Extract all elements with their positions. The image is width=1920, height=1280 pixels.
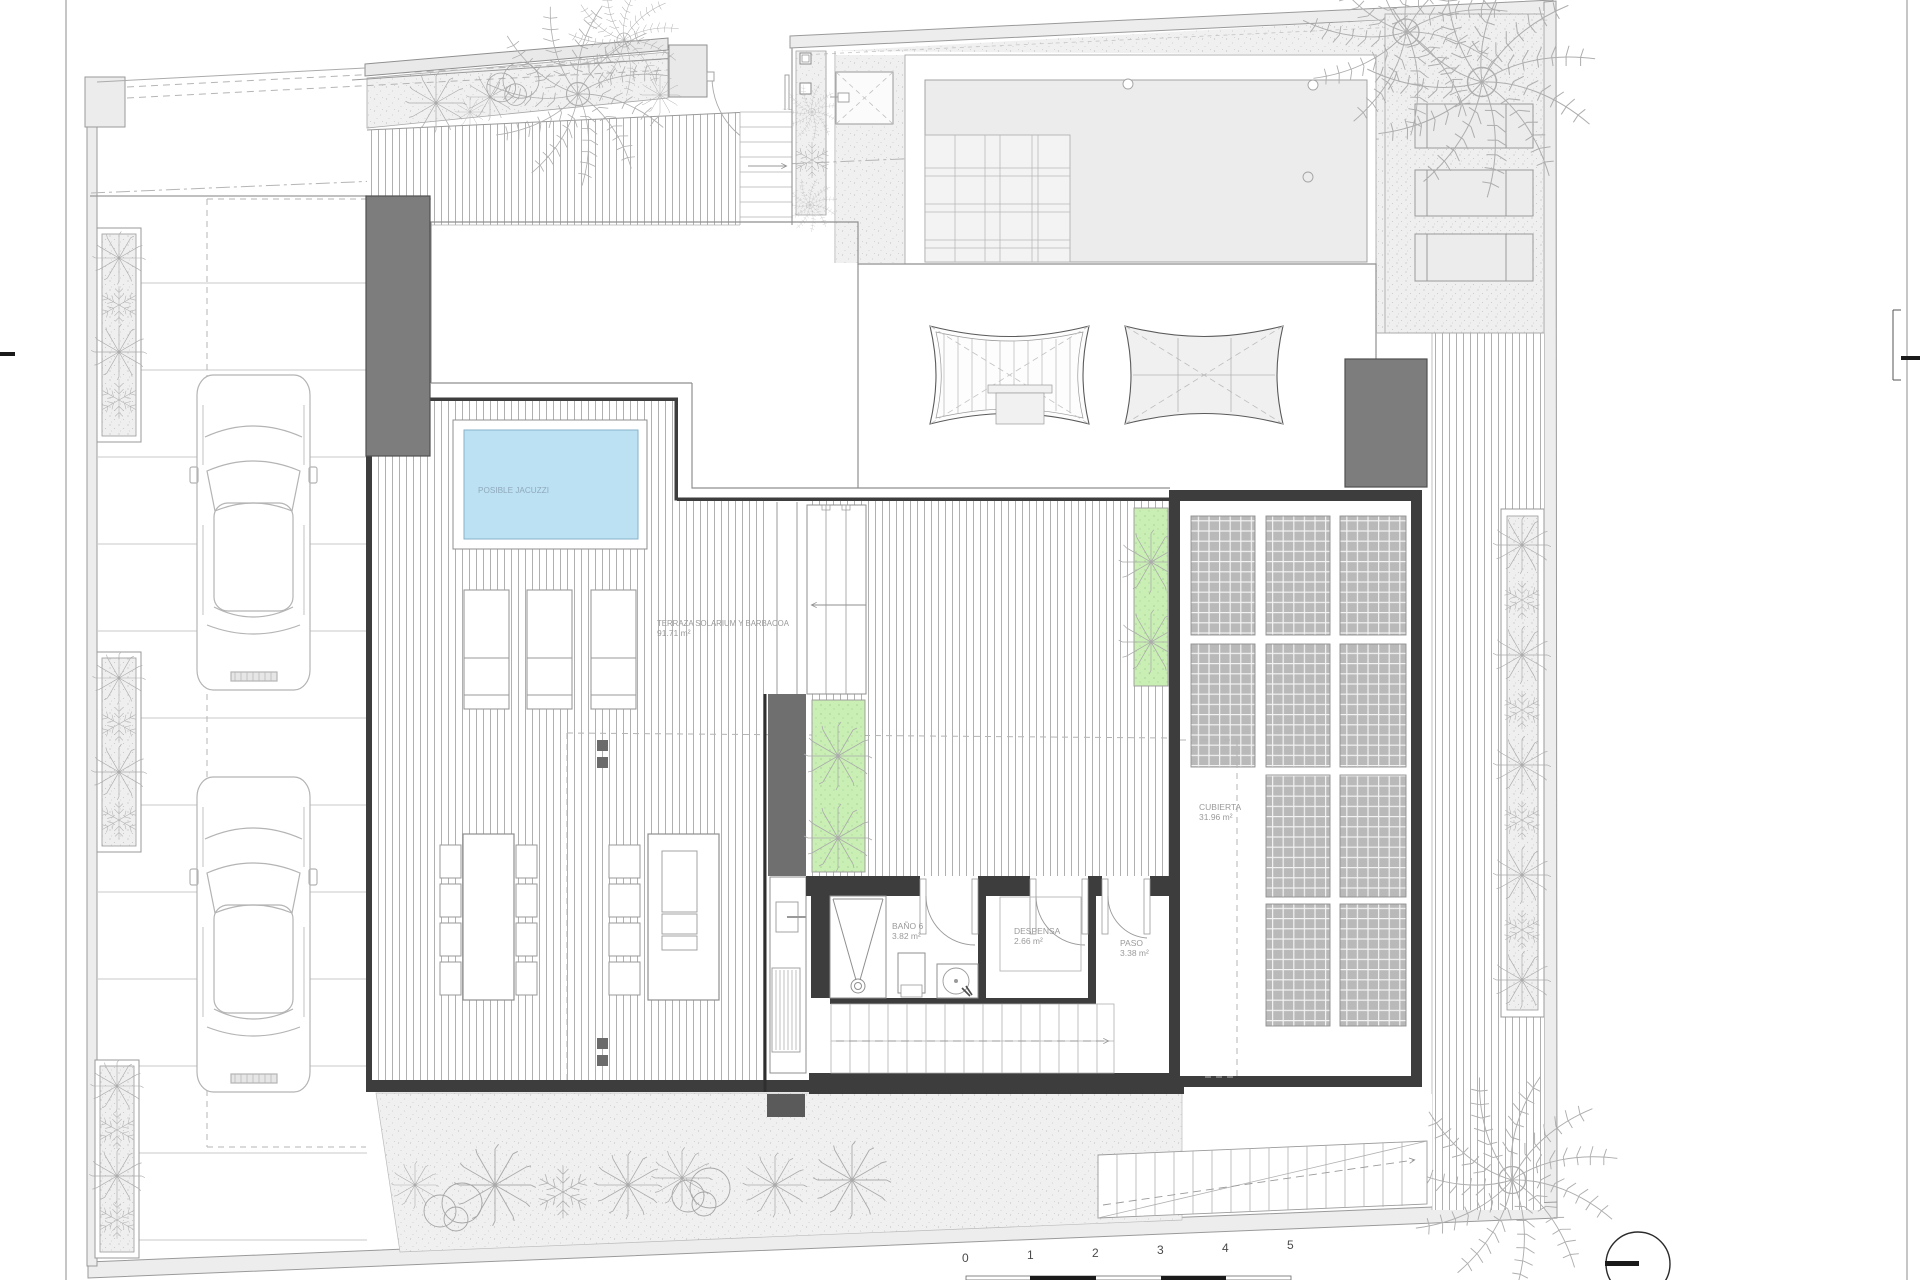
svg-text:CUBIERTA: CUBIERTA (1199, 802, 1242, 812)
svg-text:3.82 m²: 3.82 m² (892, 931, 921, 941)
svg-text:2.66 m²: 2.66 m² (1014, 936, 1043, 946)
svg-text:3.38 m²: 3.38 m² (1120, 948, 1149, 958)
svg-text:31.96 m²: 31.96 m² (1199, 812, 1233, 822)
svg-text:5: 5 (1287, 1238, 1294, 1252)
svg-text:2: 2 (1092, 1246, 1099, 1260)
svg-text:1: 1 (1027, 1248, 1034, 1262)
svg-text:PASO: PASO (1120, 938, 1143, 948)
svg-text:DESPENSA: DESPENSA (1014, 926, 1061, 936)
svg-text:0: 0 (962, 1251, 969, 1265)
svg-text:4: 4 (1222, 1241, 1229, 1255)
svg-text:BAÑO 6: BAÑO 6 (892, 921, 923, 931)
svg-text:TERRAZA SOLARIUM Y BARBACOA: TERRAZA SOLARIUM Y BARBACOA (657, 618, 789, 628)
svg-text:91.71 m²: 91.71 m² (657, 628, 691, 638)
svg-text:POSIBLE JACUZZI: POSIBLE JACUZZI (478, 485, 549, 495)
svg-text:3: 3 (1157, 1243, 1164, 1257)
